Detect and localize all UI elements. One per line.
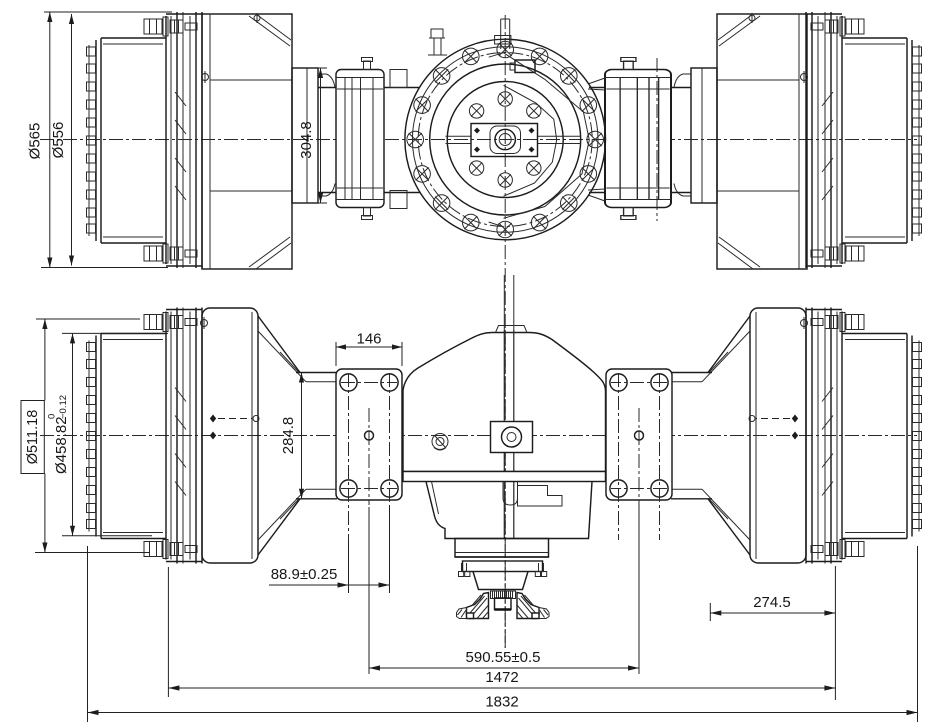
svg-text:Ø565: Ø565 (27, 123, 44, 160)
svg-text:Ø511.18: Ø511.18 (25, 410, 41, 465)
svg-text:304.8: 304.8 (298, 121, 315, 159)
svg-text:274.5: 274.5 (753, 594, 791, 611)
svg-text:146: 146 (356, 331, 381, 348)
svg-text:88.9±0.25: 88.9±0.25 (271, 566, 338, 583)
svg-text:284.8: 284.8 (280, 417, 297, 455)
svg-text:−0.12: −0.12 (58, 395, 69, 419)
svg-text:Ø458.82: Ø458.82 (53, 416, 70, 474)
svg-text:1472: 1472 (485, 669, 518, 686)
svg-text:590.55±0.5: 590.55±0.5 (466, 649, 541, 666)
svg-text:Ø556: Ø556 (50, 122, 67, 159)
svg-text:0: 0 (47, 414, 58, 419)
svg-text:1832: 1832 (485, 694, 518, 711)
